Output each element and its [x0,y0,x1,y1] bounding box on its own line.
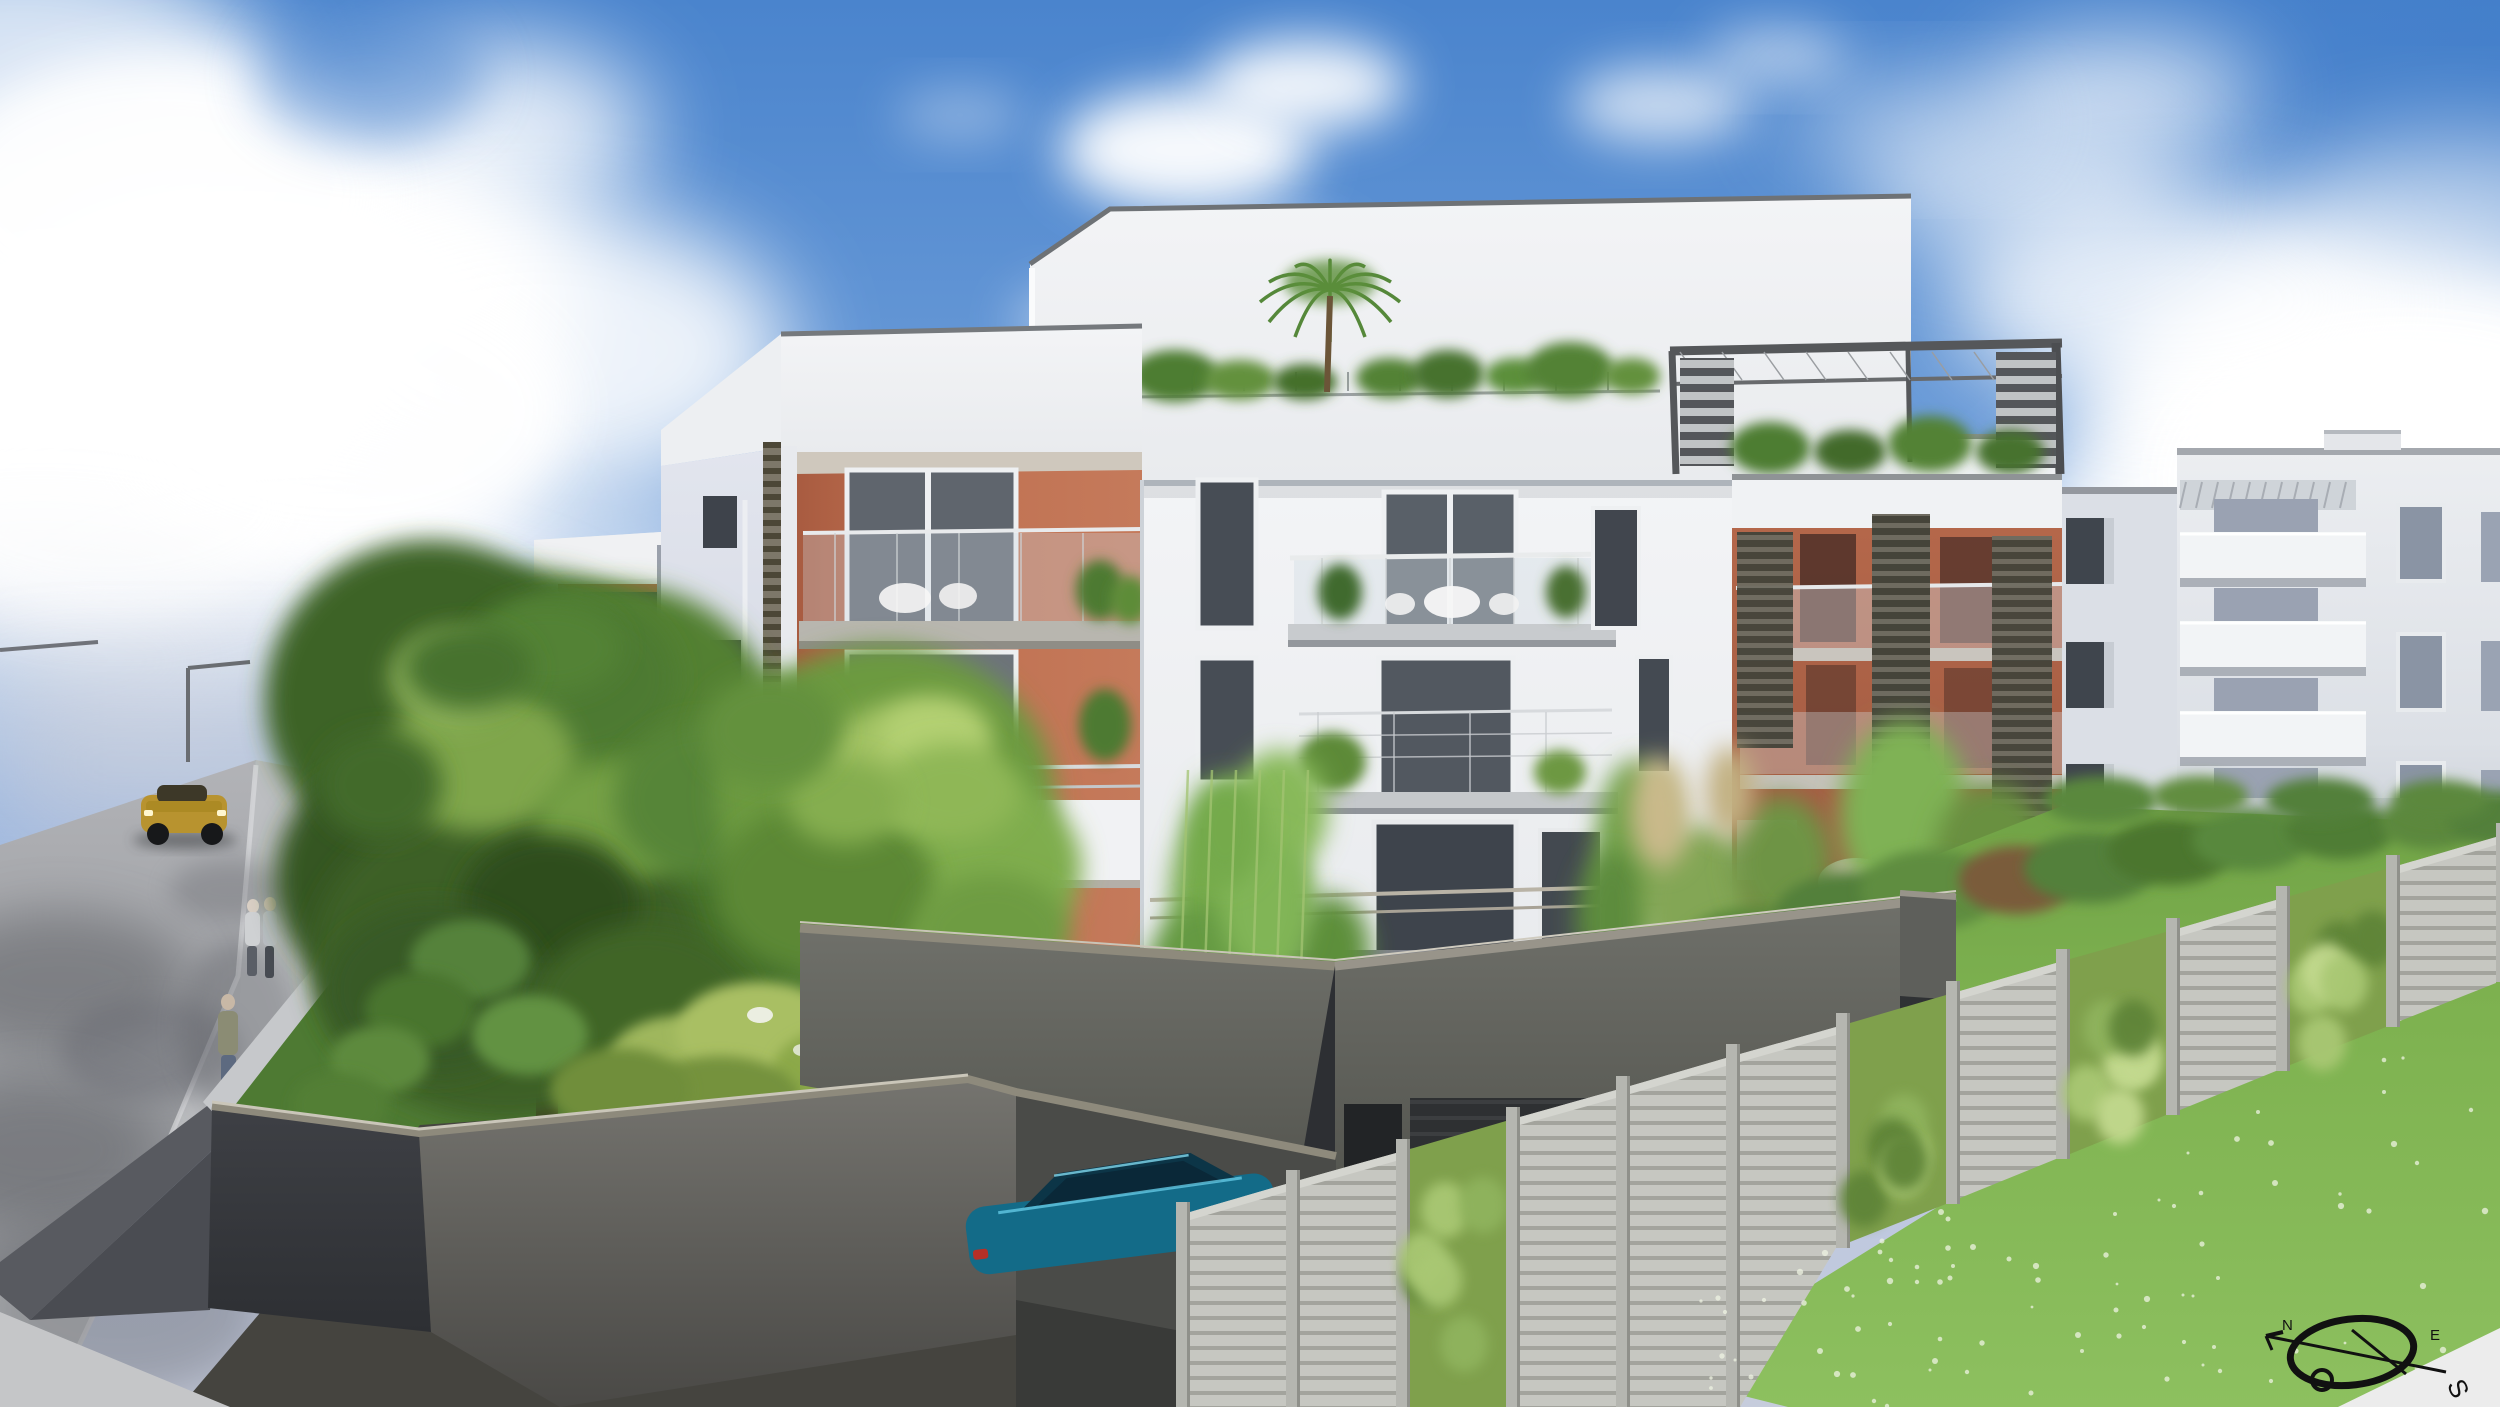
svg-text:N: N [2282,1317,2293,1334]
svg-text:E: E [2430,1327,2440,1344]
